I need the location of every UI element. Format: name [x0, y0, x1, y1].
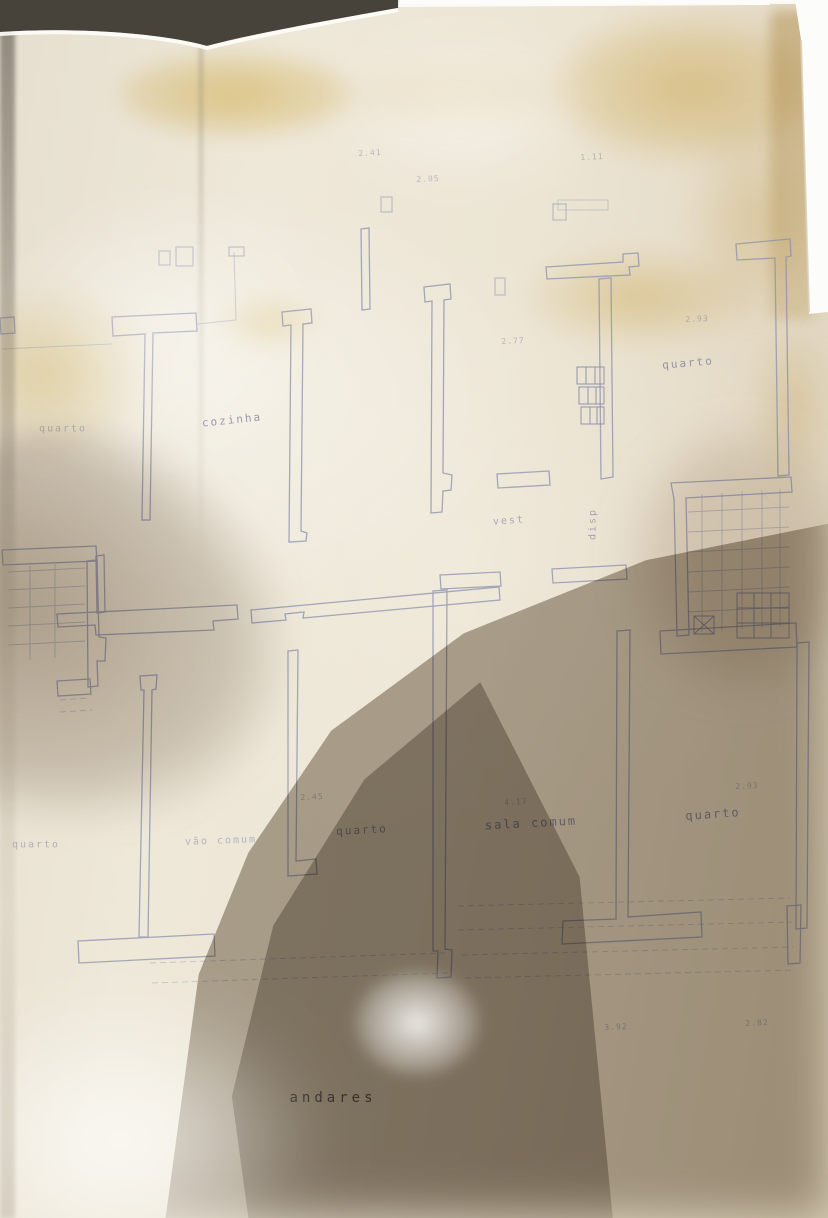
dimension-label: 4.17: [504, 797, 528, 807]
aged-page-edge-band: [770, 10, 816, 320]
yellow-stain-center: [212, 292, 322, 352]
page-right-edge-line: [801, 40, 809, 312]
dimension-label: 2.93: [685, 314, 709, 324]
shadow-stairwell-tint: [640, 440, 828, 680]
room-label-disp: disp: [588, 508, 599, 540]
stairwell-right-treads: [688, 489, 789, 632]
hand-shadow-main: [0, 0, 828, 1218]
dimension-label: 2.41: [358, 148, 382, 158]
column-symbols: [159, 197, 608, 295]
dimension-label: 2.45: [300, 792, 324, 802]
hand-shadow-dark-core: [0, 0, 828, 1218]
light-top-mid: [330, 30, 590, 190]
shadow-left-wedge: [0, 362, 353, 898]
yellow-stain-top-left: [118, 52, 353, 137]
room-label-andares: andares: [289, 1090, 376, 1106]
page-curl-highlight: [0, 10, 398, 48]
room-label-quarto-top-right: quarto: [662, 354, 715, 371]
yellow-stain-mid-right: [520, 250, 755, 345]
dimension-label: 2.82: [745, 1018, 769, 1028]
room-label-vest: vest: [493, 514, 526, 527]
top-white-sliver: [398, 0, 770, 7]
stairwell-right-hatch-boxes: [694, 593, 789, 638]
light-mid-left: [10, 200, 310, 460]
wall-outlines: [0, 228, 809, 978]
photo-edges: [0, 0, 828, 1218]
room-label-quarto-top-left: quarto: [39, 424, 87, 435]
room-label-quarto-mid-left: quarto: [336, 822, 388, 838]
page-binding-shadow: [0, 0, 15, 1218]
room-label-quarto-mid-right: quarto: [685, 805, 741, 823]
room-label-cozinha: cozinha: [201, 410, 262, 429]
light-bottom-left: [0, 990, 330, 1218]
room-label-quarto-far-left: quarto: [12, 840, 60, 851]
room-label-vao-comum: vão comum: [185, 834, 258, 848]
stairwell-left-treads: [8, 564, 85, 660]
right-background-wedge: [795, 0, 828, 314]
page-fold-crease: [199, 35, 203, 575]
dimension-label: 2.05: [416, 174, 440, 184]
dimension-label: 1.11: [580, 152, 604, 162]
dimension-label: 2.93: [735, 781, 759, 791]
kitchen-flue-hatch: [577, 367, 604, 424]
dimension-label: 3.92: [604, 1022, 628, 1032]
yellow-stain-right-band: [690, 120, 820, 320]
floor-plan-drawing: [0, 0, 828, 1218]
construction-guide-dashes: [60, 698, 795, 983]
yellow-stain-right-edge: [752, 322, 828, 492]
floor-plan-photo: cozinha quarto quarto vest disp quarto s…: [0, 0, 828, 1218]
light-reflection-blob: [352, 968, 482, 1078]
faint-connector-lines: [2, 252, 236, 349]
dark-background-band: [0, 0, 400, 46]
yellow-stain-top-center: [330, 62, 570, 127]
paper-page: [0, 4, 828, 1218]
room-label-sala-comum: sala comum: [485, 814, 578, 833]
dimension-label: 2.77: [501, 336, 525, 346]
yellow-stain-top-right: [555, 18, 820, 158]
